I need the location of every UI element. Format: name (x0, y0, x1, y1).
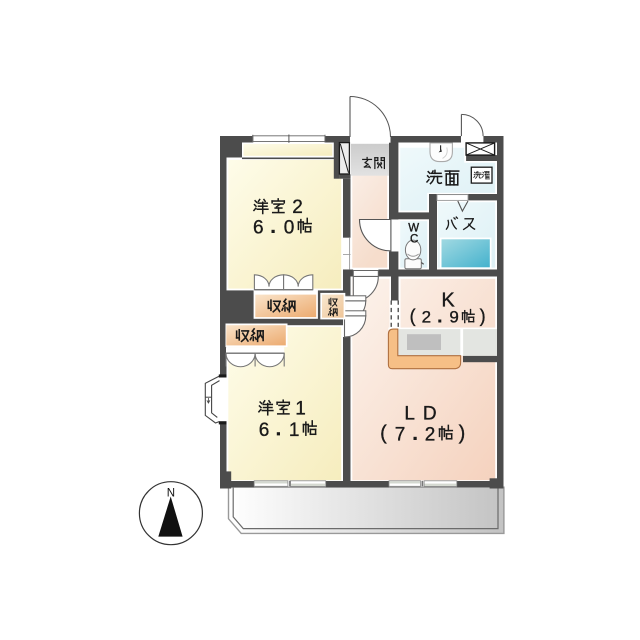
svg-text:C: C (410, 233, 418, 245)
svg-text:(: ( (380, 423, 387, 445)
svg-text:1: 1 (289, 420, 300, 441)
svg-text:): ) (480, 306, 486, 326)
svg-text:): ) (459, 423, 466, 445)
svg-text:2: 2 (425, 424, 436, 445)
svg-text:9: 9 (449, 308, 458, 327)
svg-text:7: 7 (395, 424, 406, 445)
svg-text:6: 6 (259, 420, 270, 441)
svg-text:(: ( (410, 306, 416, 326)
svg-text:1: 1 (295, 398, 306, 419)
svg-text:2: 2 (292, 197, 303, 218)
svg-text:0: 0 (284, 217, 295, 238)
svg-text:2: 2 (422, 308, 431, 327)
svg-text:6: 6 (253, 217, 264, 238)
svg-text:LD: LD (404, 403, 444, 424)
